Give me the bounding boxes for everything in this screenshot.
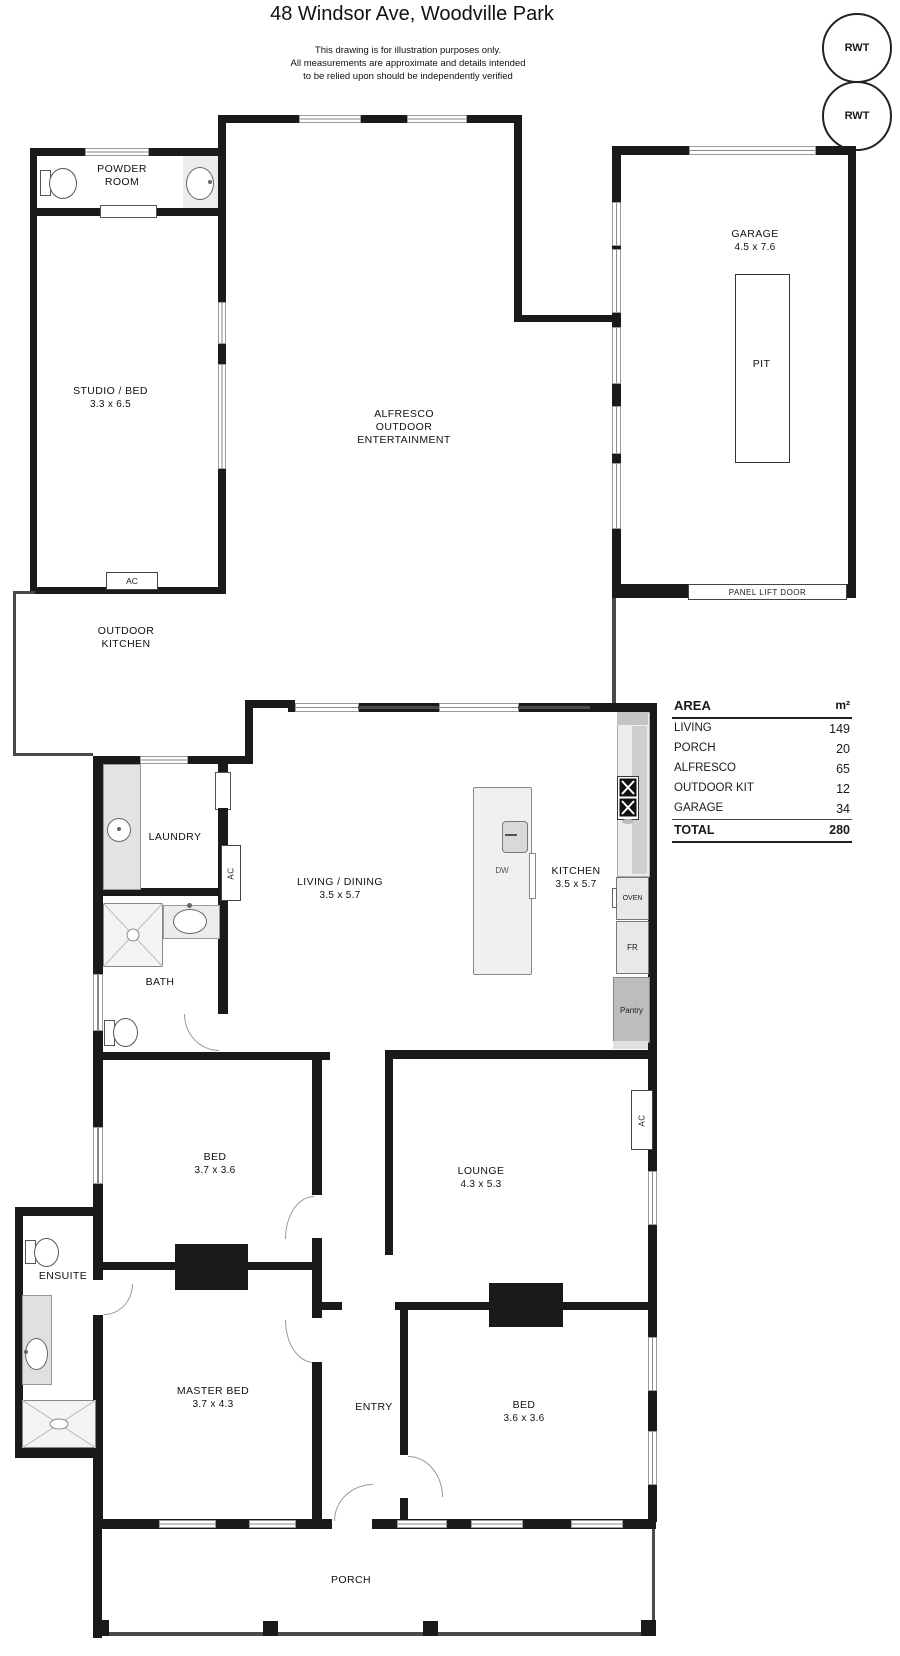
bath-sink-icon	[173, 909, 207, 934]
studio-label: STUDIO / BED 3.3 x 6.5	[48, 385, 173, 411]
window	[440, 704, 518, 711]
window	[160, 1521, 215, 1527]
wall	[13, 753, 93, 756]
fridge: FR	[616, 921, 649, 974]
porch-post	[641, 1620, 656, 1636]
room-name: BED	[479, 1399, 569, 1412]
room-name: ALFRESCO	[344, 408, 464, 421]
door-swing	[408, 1456, 443, 1497]
bed2-label: BED 3.6 x 3.6	[479, 1399, 569, 1425]
wall	[245, 700, 253, 764]
ac-unit: AC	[631, 1090, 653, 1150]
alfresco-label: ALFRESCO OUTDOOR ENTERTAINMENT	[344, 408, 464, 447]
tap-icon	[187, 903, 192, 908]
built-in-robe	[175, 1244, 248, 1290]
room-name: LOUNGE	[431, 1165, 531, 1178]
wall	[322, 1302, 342, 1310]
entry-label: ENTRY	[329, 1401, 419, 1414]
cooktop-icon	[617, 776, 639, 829]
panel-lift-door-label: PANEL LIFT DOOR	[729, 588, 807, 597]
ensuite-label: ENSUITE	[15, 1270, 111, 1283]
page-title: 48 Windsor Ave, Woodville Park	[0, 3, 824, 26]
area-row-value: 149	[829, 722, 850, 736]
rwt-label: RWT	[845, 42, 870, 54]
garage-label: GARAGE 4.5 x 7.6	[692, 228, 818, 254]
room-name: OUTDOOR	[344, 421, 464, 434]
room-name: ENTERTAINMENT	[344, 434, 464, 447]
window	[219, 303, 225, 343]
window	[219, 365, 225, 468]
pit-label: PIT	[735, 358, 788, 371]
door	[215, 772, 231, 810]
wall	[848, 146, 856, 598]
room-dims: 4.3 x 5.3	[431, 1178, 531, 1191]
oven-label: OVEN	[623, 895, 643, 902]
ac-label: AC	[227, 867, 236, 879]
area-row-value: 65	[836, 762, 850, 776]
wall	[563, 1302, 648, 1310]
powder-room-label: POWDER ROOM	[62, 163, 182, 189]
room-dims: 4.5 x 7.6	[692, 241, 818, 254]
door-swing	[285, 1196, 314, 1239]
window	[572, 1521, 622, 1527]
window	[300, 116, 360, 122]
ensuite-sink-icon	[25, 1338, 48, 1370]
window	[94, 975, 102, 1030]
door	[100, 205, 157, 218]
window	[613, 250, 620, 312]
glass-wall	[518, 706, 590, 709]
porch-edge	[93, 1632, 656, 1636]
floor-plan: 48 Windsor Ave, Woodville Park This draw…	[0, 0, 900, 1656]
wall	[312, 1362, 322, 1522]
bath-label: BATH	[130, 976, 190, 989]
kitchen-counter	[617, 712, 648, 725]
panel-lift-door: PANEL LIFT DOOR	[688, 584, 847, 600]
window	[613, 407, 620, 453]
window	[296, 704, 358, 711]
wall	[385, 1050, 656, 1059]
kitchen-island	[473, 787, 532, 975]
wall	[218, 115, 226, 594]
area-row-label: OUTDOOR KIT	[674, 782, 754, 796]
room-name: BED	[170, 1151, 260, 1164]
porch-edge	[652, 1529, 655, 1632]
ac-unit: AC	[106, 572, 158, 590]
laundry-label: LAUNDRY	[131, 831, 219, 844]
area-total-value: 280	[829, 823, 850, 837]
kitchen-label: KITCHEN 3.5 x 5.7	[526, 865, 626, 891]
shower-icon	[103, 903, 163, 972]
rwt-label: RWT	[845, 110, 870, 122]
area-header-label: AREA	[674, 698, 711, 713]
window	[408, 116, 466, 122]
room-name: OUTDOOR	[66, 625, 186, 638]
window	[613, 203, 620, 245]
tap-icon	[208, 180, 212, 184]
table-row: GARAGE 34	[672, 799, 852, 819]
wall	[103, 1262, 175, 1270]
room-dims: 3.5 x 5.7	[526, 878, 626, 891]
tap-icon	[117, 827, 121, 831]
master-bed-label: MASTER BED 3.7 x 4.3	[158, 1385, 268, 1411]
pantry: Pantry	[613, 977, 650, 1043]
wall	[400, 1310, 408, 1455]
wall	[13, 591, 35, 594]
wall	[218, 764, 228, 772]
front-door-swing	[334, 1484, 373, 1521]
window	[86, 149, 148, 155]
window	[141, 757, 187, 763]
toilet-icon	[34, 1238, 59, 1267]
wall	[514, 115, 522, 322]
area-row-label: GARAGE	[674, 802, 723, 816]
toilet-icon	[113, 1018, 138, 1047]
area-table-total: TOTAL 280	[672, 819, 852, 843]
wall	[15, 1207, 103, 1216]
rainwater-tank-icon: RWT	[822, 13, 892, 83]
rainwater-tank-icon: RWT	[822, 81, 892, 151]
shower-icon	[22, 1400, 96, 1453]
room-dims: 3.7 x 3.6	[170, 1164, 260, 1177]
window	[398, 1521, 446, 1527]
disclaimer-line: to be relied upon should be independentl…	[0, 71, 816, 82]
area-row-value: 34	[836, 802, 850, 816]
wall	[248, 1262, 312, 1270]
area-total-label: TOTAL	[674, 823, 715, 837]
window	[613, 328, 620, 383]
area-row-label: LIVING	[674, 722, 712, 736]
window	[613, 464, 620, 528]
wall	[222, 115, 518, 123]
kitchen-counter	[613, 1041, 648, 1049]
wall	[312, 1238, 322, 1318]
tap-icon	[24, 1350, 28, 1354]
wall	[514, 315, 615, 322]
room-dims: 3.6 x 3.6	[479, 1412, 569, 1425]
wall	[13, 591, 16, 756]
porch-post	[263, 1621, 278, 1636]
ac-label: AC	[638, 1114, 647, 1126]
fridge-label: FR	[627, 943, 638, 952]
built-in-robe	[489, 1283, 563, 1327]
window	[649, 1172, 656, 1224]
glass-wall	[358, 706, 440, 709]
window	[690, 147, 815, 154]
table-row: OUTDOOR KIT 12	[672, 779, 852, 799]
room-name: STUDIO / BED	[48, 385, 173, 398]
dishwasher-label: DW	[487, 866, 517, 875]
bed1-label: BED 3.7 x 3.6	[170, 1151, 260, 1177]
outdoor-kitchen-label: OUTDOOR KITCHEN	[66, 625, 186, 651]
lounge-label: LOUNGE 4.3 x 5.3	[431, 1165, 531, 1191]
porch-post	[93, 1620, 109, 1636]
tap-icon	[505, 834, 517, 836]
door-swing	[104, 1284, 133, 1315]
table-row: ALFRESCO 65	[672, 759, 852, 779]
door-swing	[184, 1014, 219, 1051]
living-dining-label: LIVING / DINING 3.5 x 5.7	[275, 876, 405, 902]
area-table: AREA m² LIVING 149 PORCH 20 ALFRESCO 65 …	[672, 696, 852, 843]
area-table-header: AREA m²	[672, 696, 852, 719]
ac-unit: AC	[221, 845, 241, 901]
pantry-label: Pantry	[620, 1006, 643, 1015]
wall	[103, 1052, 330, 1060]
area-row-value: 20	[836, 742, 850, 756]
wall	[312, 1058, 322, 1195]
room-dims: 3.5 x 5.7	[275, 889, 405, 902]
disclaimer-line: All measurements are approximate and det…	[0, 58, 816, 69]
disclaimer-line: This drawing is for illustration purpose…	[0, 45, 816, 56]
room-name: KITCHEN	[526, 865, 626, 878]
island-sink-icon	[502, 821, 528, 853]
room-dims: 3.7 x 4.3	[158, 1398, 268, 1411]
window	[649, 1432, 656, 1484]
room-name: KITCHEN	[66, 638, 186, 651]
window	[472, 1521, 522, 1527]
room-name: ROOM	[62, 176, 182, 189]
table-row: PORCH 20	[672, 739, 852, 759]
ac-label: AC	[126, 576, 138, 586]
wall	[385, 1050, 393, 1255]
porch-post	[423, 1621, 438, 1636]
area-header-unit: m²	[835, 698, 850, 713]
wall	[395, 1302, 489, 1310]
room-name: POWDER	[62, 163, 182, 176]
room-name: LIVING / DINING	[275, 876, 405, 889]
window	[250, 1521, 295, 1527]
room-name: MASTER BED	[158, 1385, 268, 1398]
area-row-value: 12	[836, 782, 850, 796]
room-name: GARAGE	[692, 228, 818, 241]
room-dims: 3.3 x 6.5	[48, 398, 173, 411]
window	[94, 1128, 102, 1183]
area-row-label: PORCH	[674, 742, 716, 756]
porch-label: PORCH	[306, 1574, 396, 1587]
table-row: LIVING 149	[672, 719, 852, 739]
wall	[612, 598, 616, 706]
area-row-label: ALFRESCO	[674, 762, 736, 776]
window	[649, 1338, 656, 1390]
oven-handle	[612, 888, 617, 908]
door-swing	[285, 1320, 314, 1363]
